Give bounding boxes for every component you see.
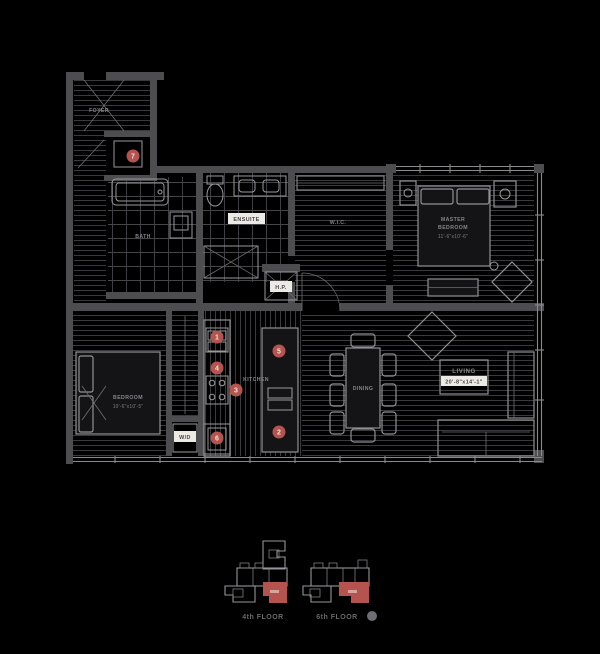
keynote-marker-6: 6 (211, 432, 224, 445)
keyplan-label-6th-floor: 6th FLOOR (316, 614, 357, 621)
kitchen-label: KITCHEN (243, 377, 269, 383)
keynote-marker-2: 2 (273, 426, 286, 439)
keynote-marker-1: 1 (211, 331, 224, 344)
svg-text:5: 5 (277, 349, 281, 356)
master-bedroom-label-line1: MASTER (441, 217, 465, 223)
master-bedroom-label-line2: BEDROOM (438, 225, 468, 231)
compass-dot-icon (367, 611, 377, 621)
keynote-marker-5: 5 (273, 345, 286, 358)
living-dimensions: 20'-8"x14'-1" (445, 380, 482, 386)
svg-text:7: 7 (131, 154, 135, 161)
floor-plan-canvas: FOYER BATH ENSUITE H.P. W.I. (0, 0, 600, 654)
svg-text:6: 6 (215, 436, 219, 443)
svg-text:1: 1 (215, 335, 219, 342)
keyplan-label-4th-floor: 4th FLOOR (242, 614, 283, 621)
bedroom-label: BEDROOM (113, 395, 143, 401)
floorplan-page: FOYER BATH ENSUITE H.P. W.I. (0, 0, 600, 654)
dining-label: DINING (353, 386, 374, 392)
svg-text:4: 4 (215, 366, 219, 373)
bed (76, 352, 160, 434)
keyplan-4th-floor (225, 541, 287, 603)
living-label: LIVING (452, 369, 476, 375)
keynote-marker-7: 7 (127, 150, 140, 163)
master-bedroom-dimensions: 11'-6"x10'-6" (438, 234, 468, 240)
wic-label: W.I.C. (330, 220, 347, 226)
keynote-marker-4: 4 (211, 362, 224, 375)
hp-label: H.P. (275, 285, 286, 291)
wd-label: W/D (179, 435, 191, 441)
svg-text:2: 2 (277, 430, 281, 437)
bath-label: BATH (135, 234, 151, 240)
svg-text:3: 3 (234, 388, 238, 395)
laundry-closet: W/D (173, 424, 197, 452)
keyplan-6th-floor (303, 560, 369, 603)
keynote-marker-3: 3 (230, 384, 243, 397)
ensuite-label: ENSUITE (233, 217, 259, 223)
foyer-label: FOYER (89, 108, 109, 114)
bedroom-dimensions: 10'-6"x10'-5" (113, 404, 144, 410)
